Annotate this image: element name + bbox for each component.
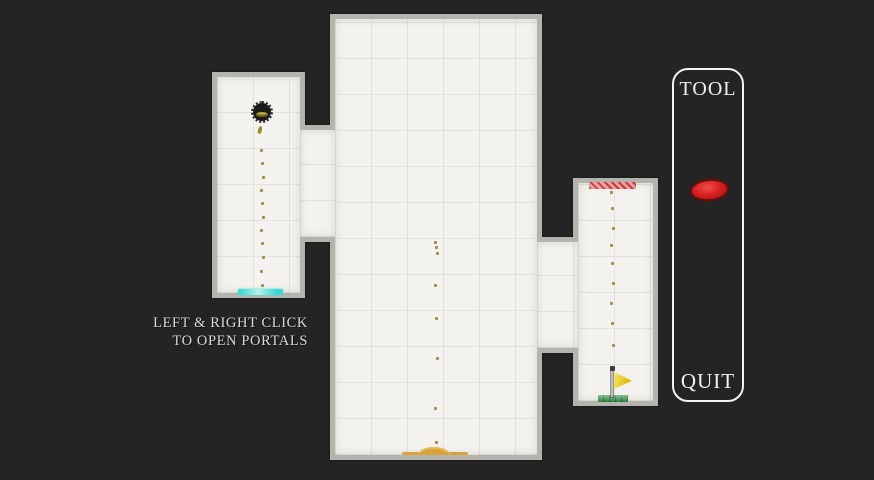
trail-dot [262, 176, 265, 179]
trail-dot [612, 227, 615, 230]
trail-dot [261, 162, 264, 165]
goal-pad [598, 395, 628, 402]
trail-dot [435, 317, 438, 320]
instructions-line-2: TO OPEN PORTALS [140, 333, 308, 351]
goal-flag-pole [611, 369, 613, 397]
trail-dot [261, 202, 264, 205]
trail-dot [610, 244, 613, 247]
cyan-portal-strip [238, 289, 283, 295]
floor-right-corridor[interactable] [537, 242, 578, 348]
trail-dot [610, 191, 613, 194]
tool-panel: TOOL QUIT [672, 68, 744, 402]
trail-dot [262, 256, 265, 259]
player-mouth-icon [256, 112, 268, 117]
trail-dot [262, 216, 265, 219]
trail-dot [261, 284, 264, 287]
trail-dot [435, 246, 438, 249]
quit-button[interactable]: QUIT [674, 369, 742, 394]
red-checkpoint-strip [589, 182, 636, 189]
trail-dot [436, 252, 439, 255]
trail-dot [610, 302, 613, 305]
trail-dot [611, 322, 614, 325]
trail-dot [612, 344, 615, 347]
trail-dot [260, 270, 263, 273]
trail-dot [612, 282, 615, 285]
goal-flag-cap [610, 366, 615, 371]
floor-left-corridor[interactable] [300, 130, 335, 237]
trail-dot [261, 242, 264, 245]
trail-dot [260, 149, 263, 152]
trail-dot [434, 241, 437, 244]
trail-dot [260, 229, 263, 232]
trail-dot [611, 207, 614, 210]
tool-panel-header: TOOL [674, 78, 742, 101]
trail-dot [434, 407, 437, 410]
trail-dot [436, 357, 439, 360]
trail-dot [611, 262, 614, 265]
trail-dot [260, 189, 263, 192]
tool-red-blob-icon[interactable] [689, 177, 730, 202]
floor-center-room[interactable] [335, 19, 537, 455]
instructions-line-1: LEFT & RIGHT CLICK [140, 315, 308, 333]
floor-right-room[interactable] [578, 183, 653, 401]
instructions-text: LEFT & RIGHT CLICK TO OPEN PORTALS [140, 315, 308, 350]
game-screen: LEFT & RIGHT CLICK TO OPEN PORTALS TOOL … [0, 0, 874, 480]
trail-dot [435, 441, 438, 444]
trail-dot [434, 284, 437, 287]
